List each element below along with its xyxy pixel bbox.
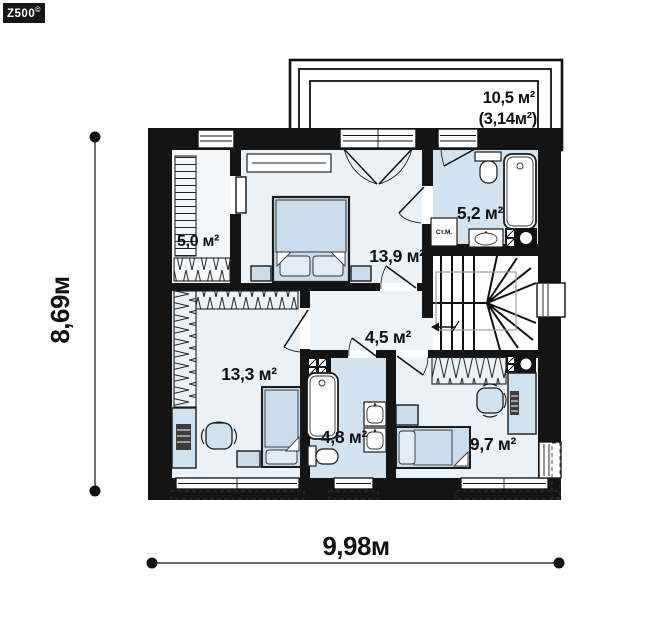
washing-machine: Ст.М. (431, 218, 457, 246)
floor-plan-drawing: Ст.М. (0, 0, 655, 636)
area-label-wardrobe: 5,0 м² (177, 233, 219, 250)
wardrobe-hatch-13-3-top (196, 291, 298, 309)
toilet (308, 446, 338, 466)
area-label-balcony-secondary: (3,14м²) (479, 110, 537, 128)
double-bed (273, 197, 349, 282)
washing-machine-label: Ст.М. (436, 229, 453, 236)
wardrobe-hatch-9-7 (432, 357, 506, 384)
area-label-bedroom-top: 13,9 м² (369, 246, 425, 266)
single-bed (396, 427, 470, 468)
desk (172, 408, 196, 468)
dimension-width: 9,98м (147, 531, 565, 569)
floor-plan-page: Z500© (0, 0, 655, 636)
door-wardrobe (236, 177, 246, 213)
nightstand (237, 451, 260, 467)
wardrobe-shelf (247, 154, 331, 172)
area-label-bedroom-left: 13,3 м² (221, 364, 277, 384)
nightstand-left (251, 266, 271, 281)
bathtub (504, 154, 536, 229)
vanity-counter (505, 228, 537, 248)
width-dimension-label: 9,98м (322, 531, 389, 561)
nightstand (396, 405, 418, 425)
vanity-counter (506, 355, 536, 373)
dimension-height: 8,69м (45, 132, 101, 497)
area-label-bedroom-right: 9,7 м² (470, 434, 517, 454)
desk (508, 373, 536, 434)
washbasin (469, 229, 503, 247)
area-label-hallway: 4,5 м² (365, 327, 412, 347)
area-label-bathroom-top: 5,2 м² (457, 203, 504, 223)
area-label-balcony: 10,5 м² (483, 89, 536, 107)
wardrobe-hatch-13-3-left (174, 291, 196, 407)
height-dimension-label: 8,69м (45, 276, 75, 343)
washbasin-lower (364, 428, 386, 452)
wardrobe-hatch-5-0 (174, 258, 230, 281)
washbasin-upper (364, 402, 386, 426)
nightstand-right (351, 266, 371, 281)
area-label-bathroom-bottom: 4,8 м² (321, 427, 368, 447)
window-top-wardrobe (198, 130, 234, 148)
window-right-stairs (537, 283, 565, 317)
single-bed (262, 387, 301, 467)
